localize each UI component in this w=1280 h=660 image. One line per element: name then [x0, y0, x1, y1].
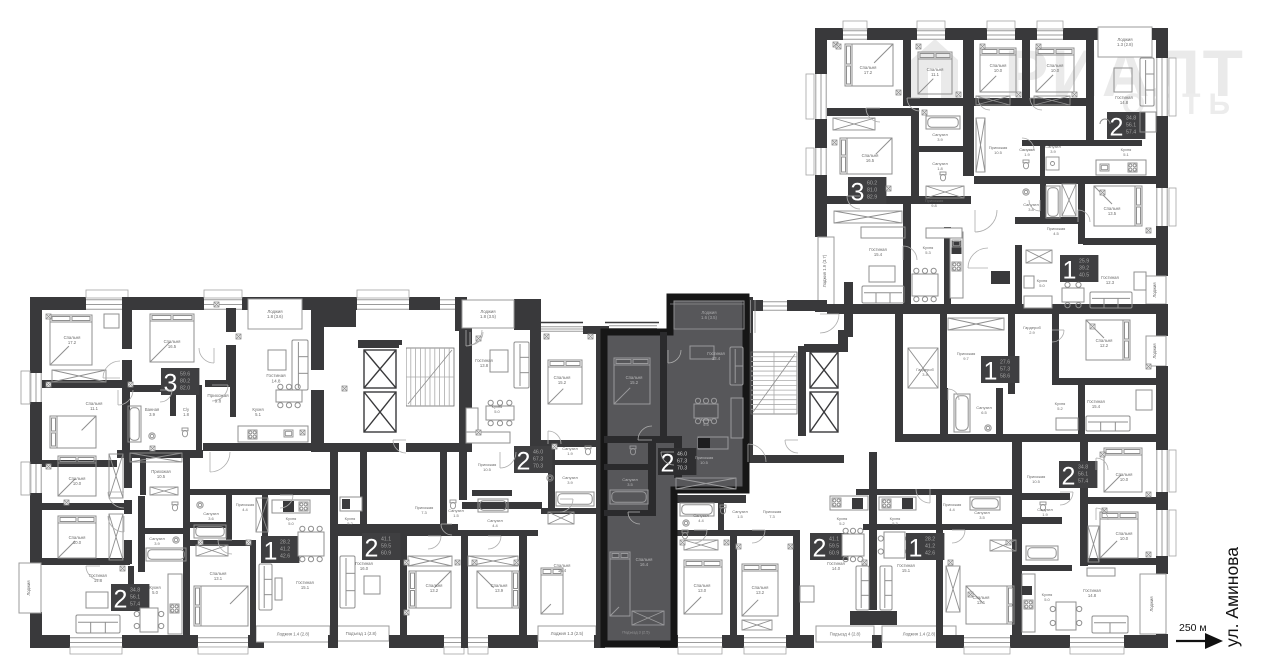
svg-text:Лоджия 1.4 (2.8): Лоджия 1.4 (2.8): [903, 632, 936, 637]
svg-text:1.9: 1.9: [1042, 512, 1048, 517]
svg-text:Лоджия 1.9 (3.7): Лоджия 1.9 (3.7): [822, 254, 827, 287]
svg-text:5.0: 5.0: [494, 409, 500, 414]
svg-text:14.8: 14.8: [1120, 100, 1129, 105]
svg-text:1.5: 1.5: [453, 513, 459, 518]
svg-text:14.8: 14.8: [1088, 593, 1097, 598]
svg-text:10.0: 10.0: [73, 540, 82, 545]
svg-text:3.4: 3.4: [922, 372, 928, 377]
svg-text:1.8 (3.6): 1.8 (3.6): [267, 314, 284, 319]
svg-text:70.3: 70.3: [677, 466, 687, 472]
svg-text:57.4: 57.4: [1126, 130, 1136, 136]
svg-text:13.2: 13.2: [756, 590, 765, 595]
svg-text:27.6: 27.6: [1000, 360, 1010, 366]
svg-text:3.9: 3.9: [149, 412, 155, 417]
svg-text:10.5: 10.5: [994, 150, 1003, 155]
svg-text:17.2: 17.2: [864, 70, 873, 75]
svg-text:41.1: 41.1: [381, 537, 391, 543]
svg-text:10.5: 10.5: [157, 474, 166, 479]
svg-text:Подъезд 3 (2.5): Подъезд 3 (2.5): [622, 630, 650, 634]
svg-text:2: 2: [813, 535, 827, 563]
svg-text:13.5: 13.5: [1108, 211, 1117, 216]
svg-text:16.4: 16.4: [640, 562, 649, 567]
svg-text:34.8: 34.8: [1078, 465, 1088, 471]
svg-text:15.1: 15.1: [902, 568, 911, 573]
svg-text:58.6: 58.6: [1000, 374, 1010, 380]
svg-text:2: 2: [114, 586, 128, 614]
svg-text:67.3: 67.3: [677, 459, 687, 465]
svg-text:7.3: 7.3: [421, 510, 427, 515]
svg-text:41.2: 41.2: [280, 547, 290, 553]
svg-text:1.8: 1.8: [937, 166, 943, 171]
svg-text:28.2: 28.2: [280, 540, 290, 546]
svg-text:9.7: 9.7: [963, 356, 969, 361]
svg-text:2: 2: [1110, 114, 1124, 142]
svg-text:82.0: 82.0: [180, 386, 190, 392]
svg-text:81.0: 81.0: [867, 188, 877, 194]
svg-text:46.0: 46.0: [677, 452, 687, 458]
svg-text:5.2: 5.2: [1057, 406, 1063, 411]
svg-text:59.5: 59.5: [381, 544, 391, 550]
svg-text:10.0: 10.0: [1120, 536, 1129, 541]
svg-text:1.5: 1.5: [737, 514, 743, 519]
svg-text:13.1: 13.1: [214, 576, 223, 581]
svg-text:70.3: 70.3: [533, 464, 543, 470]
svg-text:12.3: 12.3: [1106, 280, 1115, 285]
svg-text:3.9: 3.9: [567, 480, 573, 485]
svg-text:5.3: 5.3: [892, 521, 898, 526]
svg-text:14.8: 14.8: [272, 378, 281, 383]
svg-text:5.0: 5.0: [152, 590, 158, 595]
svg-text:17.2: 17.2: [68, 340, 77, 345]
svg-text:ул. Аминова: ул. Аминова: [1222, 547, 1242, 647]
svg-text:41.2: 41.2: [925, 544, 935, 550]
svg-text:Лоджия: Лоджия: [1149, 596, 1154, 612]
svg-text:12.2: 12.2: [1100, 343, 1109, 348]
svg-text:60.2: 60.2: [867, 181, 877, 187]
svg-text:Подъезд 4 (2.8): Подъезд 4 (2.8): [830, 632, 861, 637]
svg-text:3: 3: [851, 179, 865, 207]
svg-text:15.2: 15.2: [558, 380, 567, 385]
svg-text:5.1: 5.1: [1123, 152, 1129, 157]
svg-text:3.9: 3.9: [1050, 149, 1056, 154]
svg-text:4.5: 4.5: [1053, 231, 1059, 236]
svg-text:13.8: 13.8: [480, 363, 489, 368]
svg-text:80.2: 80.2: [180, 379, 190, 385]
svg-text:57.4: 57.4: [1078, 479, 1088, 485]
svg-text:16.4: 16.4: [558, 568, 567, 573]
svg-text:1.3 (2.8): 1.3 (2.8): [1117, 42, 1134, 47]
svg-text:4.4: 4.4: [949, 507, 955, 512]
svg-text:11.1: 11.1: [90, 406, 99, 411]
svg-text:56.1: 56.1: [130, 595, 140, 601]
svg-text:13.4: 13.4: [712, 356, 721, 361]
svg-text:1.8 (3.5): 1.8 (3.5): [480, 314, 497, 319]
svg-text:42.6: 42.6: [280, 554, 290, 560]
svg-text:3.5: 3.5: [979, 515, 985, 520]
svg-text:7.3: 7.3: [769, 514, 775, 519]
svg-text:10.5: 10.5: [700, 460, 709, 465]
svg-text:5.1: 5.1: [255, 412, 261, 417]
svg-text:10.5: 10.5: [483, 467, 492, 472]
svg-text:59.6: 59.6: [180, 372, 190, 378]
svg-text:60.9: 60.9: [829, 551, 839, 557]
svg-text:59.5: 59.5: [829, 544, 839, 550]
svg-text:25.9: 25.9: [1079, 259, 1089, 265]
svg-text:3.5: 3.5: [627, 482, 633, 487]
svg-text:5.0: 5.0: [288, 521, 294, 526]
svg-text:9.8: 9.8: [931, 203, 937, 208]
svg-text:34.8: 34.8: [130, 588, 140, 594]
svg-text:1.9: 1.9: [567, 451, 573, 456]
svg-text:46.0: 46.0: [533, 450, 543, 456]
svg-text:60.9: 60.9: [381, 551, 391, 557]
svg-text:67.3: 67.3: [533, 457, 543, 463]
svg-text:2.9: 2.9: [1029, 330, 1035, 335]
svg-text:16.5: 16.5: [866, 158, 875, 163]
svg-text:56.1: 56.1: [1126, 123, 1136, 129]
svg-text:5.2: 5.2: [839, 521, 845, 526]
svg-text:41.1: 41.1: [829, 537, 839, 543]
svg-text:Лоджия: Лоджия: [1152, 282, 1157, 298]
svg-text:Лоджия 1.4 (2.8): Лоджия 1.4 (2.8): [277, 632, 310, 637]
svg-text:10.5: 10.5: [1032, 479, 1041, 484]
svg-text:15.2: 15.2: [630, 380, 639, 385]
svg-text:3.9: 3.9: [937, 137, 943, 142]
svg-text:1: 1: [264, 538, 278, 566]
svg-text:13.2: 13.2: [430, 588, 439, 593]
svg-text:5.3: 5.3: [925, 250, 931, 255]
svg-text:40.5: 40.5: [1079, 273, 1089, 279]
svg-text:10.0: 10.0: [73, 481, 82, 486]
svg-text:10.0: 10.0: [994, 68, 1003, 73]
svg-text:39.2: 39.2: [1079, 266, 1089, 272]
svg-text:Лоджия 1.3 (2.5): Лоджия 1.3 (2.5): [551, 631, 584, 636]
svg-text:4.4: 4.4: [492, 523, 498, 528]
svg-text:28.2: 28.2: [925, 537, 935, 543]
svg-text:1: 1: [984, 358, 998, 386]
svg-text:5.2: 5.2: [347, 521, 353, 526]
svg-text:1.6 (3.5): 1.6 (3.5): [701, 315, 718, 320]
svg-text:3.9: 3.9: [154, 541, 160, 546]
svg-text:1: 1: [1063, 257, 1077, 285]
svg-text:Лоджия: Лоджия: [26, 580, 31, 596]
svg-text:2: 2: [1062, 463, 1076, 491]
svg-text:1.9: 1.9: [1024, 152, 1030, 157]
svg-text:15.1: 15.1: [301, 585, 310, 590]
svg-text:16.0: 16.0: [360, 566, 369, 571]
svg-text:57.3: 57.3: [1000, 367, 1010, 373]
svg-text:3.6: 3.6: [208, 516, 214, 521]
svg-text:5.0: 5.0: [1044, 597, 1050, 602]
svg-text:82.9: 82.9: [867, 195, 877, 201]
svg-text:5.0: 5.0: [1039, 283, 1045, 288]
svg-text:Гостиная: Гостиная: [266, 373, 286, 378]
svg-text:Лоджия: Лоджия: [1152, 343, 1157, 359]
svg-text:42.6: 42.6: [925, 551, 935, 557]
svg-text:3: 3: [164, 370, 178, 398]
svg-text:5.5: 5.5: [703, 422, 709, 427]
svg-text:4.4: 4.4: [698, 518, 704, 523]
svg-text:57.4: 57.4: [130, 602, 140, 608]
svg-text:1.8: 1.8: [183, 412, 189, 417]
svg-text:1: 1: [909, 535, 923, 563]
svg-text:2: 2: [517, 448, 531, 476]
svg-text:Подъезд 1 (2.8): Подъезд 1 (2.8): [346, 631, 377, 636]
svg-text:11.1: 11.1: [931, 72, 940, 77]
svg-text:4.4: 4.4: [242, 507, 248, 512]
svg-text:56.1: 56.1: [1078, 472, 1088, 478]
svg-text:15.4: 15.4: [1092, 404, 1101, 409]
svg-text:15.4: 15.4: [874, 252, 883, 257]
svg-text:2: 2: [365, 535, 379, 563]
svg-text:16.5: 16.5: [168, 344, 177, 349]
svg-text:34.8: 34.8: [1126, 116, 1136, 122]
svg-text:13.1: 13.1: [977, 600, 986, 605]
svg-text:13.0: 13.0: [698, 588, 707, 593]
svg-text:14.0: 14.0: [832, 566, 841, 571]
svg-text:13.9: 13.9: [495, 588, 504, 593]
svg-text:6.5: 6.5: [981, 410, 987, 415]
svg-text:250 м: 250 м: [1179, 622, 1207, 634]
svg-text:10.0: 10.0: [1051, 68, 1060, 73]
svg-text:10.0: 10.0: [1120, 477, 1129, 482]
